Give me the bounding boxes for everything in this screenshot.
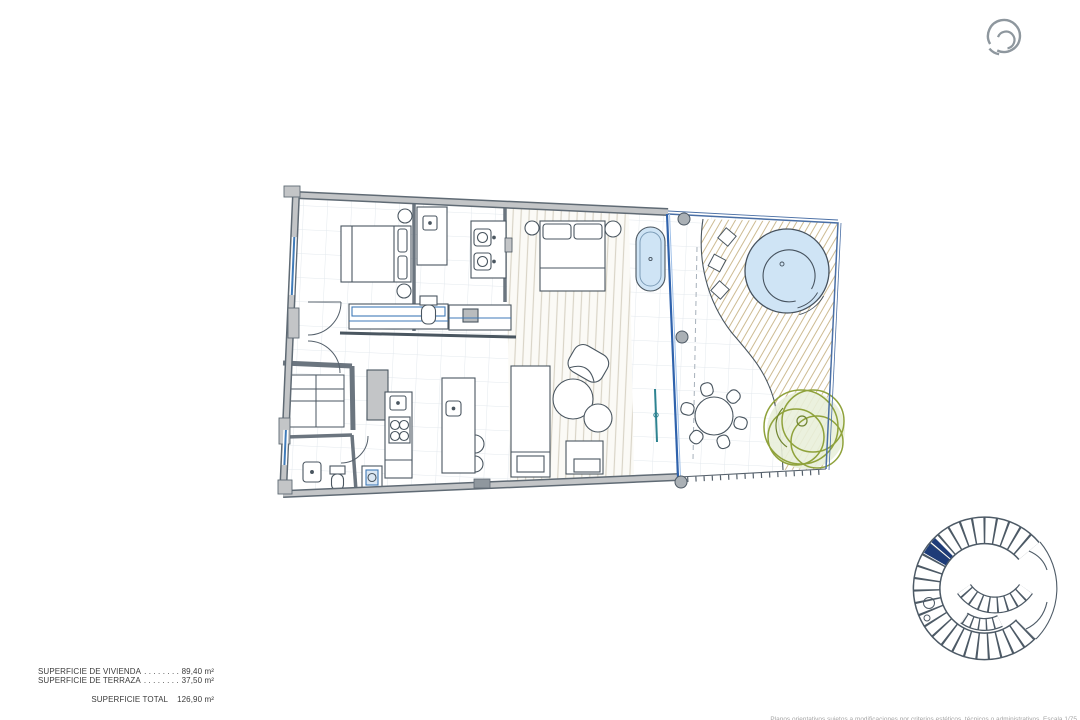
toilet — [330, 466, 345, 490]
leader-dots: . . . . . . . . . . — [144, 676, 179, 685]
area-row-terraza: SUPERFICIE DE TERRAZA . . . . . . . . . … — [38, 676, 214, 685]
master-bedroom — [525, 221, 665, 291]
area-value: 37,50 m² — [182, 676, 214, 685]
nightstand — [525, 221, 539, 235]
area-value: 89,40 m² — [182, 667, 214, 676]
wall-nib — [505, 238, 512, 252]
washing-machine — [362, 466, 382, 489]
area-label: SUPERFICIE DE TERRAZA — [38, 676, 141, 685]
sideboard-tv — [449, 305, 511, 330]
location-keyplan — [924, 530, 1057, 646]
bathroom-vanity — [471, 221, 506, 278]
closet — [288, 375, 344, 427]
nightstand — [605, 221, 621, 237]
shower — [417, 207, 447, 265]
sofa — [566, 441, 603, 474]
toilet — [420, 296, 437, 324]
wall-pilaster — [284, 186, 300, 197]
area-total-row: SUPERFICIE TOTAL 126,90 m² — [38, 695, 214, 704]
floorplan-canvas — [0, 0, 1080, 720]
nightstand — [397, 284, 411, 298]
threshold-block — [474, 479, 490, 488]
plan-sheet: SUPERFICIE DE VIVIENDA . . . . . . . . .… — [0, 0, 1080, 720]
area-row-vivienda: SUPERFICIE DE VIVIENDA . . . . . . . . .… — [38, 667, 214, 676]
bedroom-bed — [341, 226, 411, 282]
wall-pilaster — [278, 480, 292, 494]
leader-dots: . . . . . . . . . . — [144, 667, 179, 676]
apartment-interior — [280, 190, 680, 495]
tall-counter — [511, 366, 550, 477]
nightstand — [398, 209, 412, 223]
wall-pilaster — [288, 308, 299, 338]
coffee-table — [584, 404, 612, 432]
keyplan-inner-wing — [964, 589, 1026, 624]
plan-disclaimer: Planos orientativos sujetos a modificaci… — [770, 716, 1077, 720]
bathroom2-sink — [303, 462, 321, 482]
master-bed — [540, 221, 605, 291]
terrace-plunge-pool — [745, 229, 829, 315]
terrace — [650, 200, 850, 490]
total-value: 126,90 m² — [177, 695, 214, 704]
dining-table — [695, 397, 733, 435]
total-label: SUPERFICIE TOTAL — [91, 695, 168, 704]
area-label: SUPERFICIE DE VIVIENDA — [38, 667, 141, 676]
kitchen-cooktop — [385, 392, 412, 478]
brand-logo-icon — [988, 20, 1020, 54]
area-summary: SUPERFICIE DE VIVIENDA . . . . . . . . .… — [38, 667, 214, 704]
bathtub — [636, 227, 665, 291]
